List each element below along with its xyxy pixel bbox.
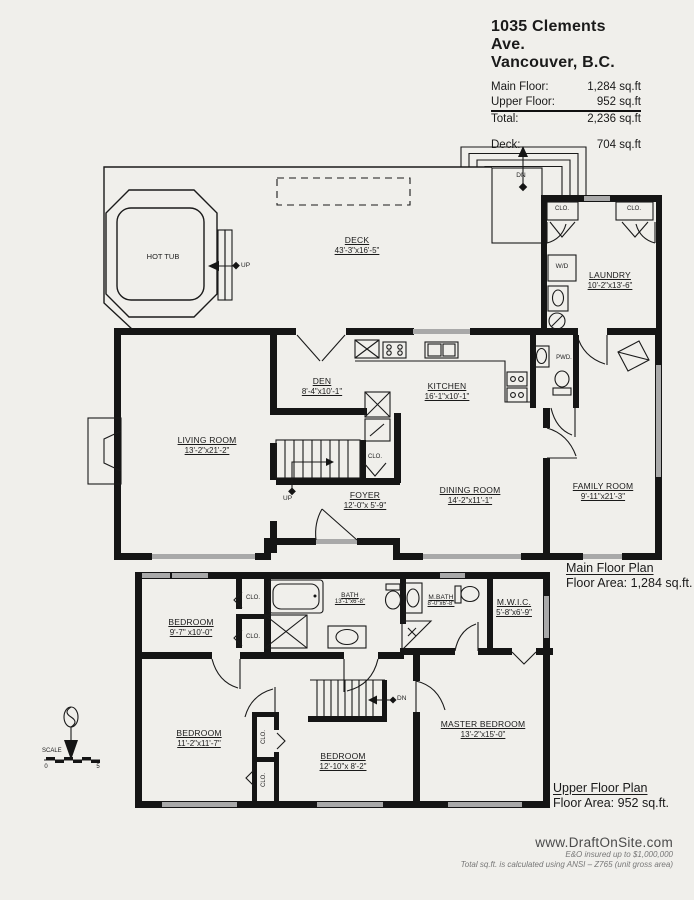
area-value: 1,284 sq.ft <box>587 80 641 95</box>
room-dims: 5'-8"x6'-9" <box>496 608 532 617</box>
room-dims: 11'-2"x11'-7" <box>176 739 221 748</box>
room-label-master-bath: M.BATH 8'-0"x6'-8" <box>428 594 455 608</box>
dn-stairs-label: DN <box>397 695 406 702</box>
up-stairs-label: UP <box>283 495 292 502</box>
caption-area: Floor Area: 1,284 sq.ft. <box>566 576 692 591</box>
room-dims: 9'-7" x10'-0" <box>168 628 213 637</box>
insurance-note: E&O insured up to $1,000,000 <box>461 850 673 860</box>
address-line1: 1035 Clements Ave. <box>491 18 641 54</box>
room-dims: 13'-2"x15'-0" <box>441 730 526 739</box>
area-row-deck: Deck: 704 sq.ft <box>491 138 641 153</box>
appliance <box>507 372 527 386</box>
dn-deck-label: DN <box>516 172 525 179</box>
floorplan-page: 1035 Clements Ave. Vancouver, B.C. Main … <box>0 0 694 900</box>
closet-label: CLO. <box>555 206 569 212</box>
room-dims: 8'-4"x10'-1" <box>302 387 342 396</box>
door-arc <box>547 428 577 458</box>
area-value: 2,236 sq.ft <box>587 112 641 127</box>
area-value: 952 sq.ft <box>597 95 641 110</box>
room-label-walk-in-closet: M.W.I.C. 5'-8"x6'-9" <box>496 598 532 617</box>
footer: www.DraftOnSite.com E&O insured up to $1… <box>461 835 673 871</box>
main-floor-interior <box>270 328 649 554</box>
appliance <box>507 388 527 402</box>
upper-floor-caption: Upper Floor Plan Floor Area: 952 sq.ft. <box>553 781 669 811</box>
room-label-bedroom-nw: BEDROOM 9'-7" x10'-0" <box>168 618 213 637</box>
area-label: Deck: <box>491 138 520 153</box>
area-label: Upper Floor: <box>491 95 555 110</box>
room-label-master-bedroom: MASTER BEDROOM 13'-2"x15'-0" <box>441 720 526 739</box>
room-label-laundry: LAUNDRY 10'-2"x13'-6" <box>588 271 633 290</box>
area-label: Main Floor: <box>491 80 549 95</box>
up-arrow <box>292 462 327 491</box>
area-row-upper: Upper Floor: 952 sq.ft <box>491 95 641 110</box>
scale-label: SCALE <box>42 748 62 754</box>
corner-shower <box>402 621 431 650</box>
scale-end-label: 5 <box>96 764 99 770</box>
room-name: FAMILY ROOM <box>573 482 633 492</box>
closet-label: CLO. <box>261 773 267 787</box>
room-dims: 9'-11"x21'-3" <box>573 492 633 501</box>
washer-dryer-label: W/D <box>556 263 569 270</box>
stove <box>383 342 406 358</box>
closet-label: CLO. <box>261 730 267 744</box>
main-floor-caption: Main Floor Plan Floor Area: 1,284 sq.ft. <box>566 561 692 591</box>
room-dims: 10'-2"x13'-6" <box>588 281 633 290</box>
pwd-toilet <box>555 371 569 387</box>
caption-title: Main Floor Plan <box>566 561 692 576</box>
scale-start-label: 0 <box>44 764 47 770</box>
powder-room-label: PWD. <box>556 355 572 361</box>
room-name: M.W.I.C. <box>496 598 532 608</box>
room-dims: 13'-1"x6'-8" <box>335 599 365 606</box>
address-line2: Vancouver, B.C. <box>491 54 641 72</box>
room-name: LIVING ROOM <box>178 436 237 446</box>
room-dims: 16'-1"x10'-1" <box>425 392 470 401</box>
closet-door-chevron <box>512 652 536 664</box>
caption-title: Upper Floor Plan <box>553 781 669 796</box>
closet-door-chevron <box>364 463 386 476</box>
room-dims: 8'-0"x6'-8" <box>428 601 455 608</box>
area-table: Main Floor: 1,284 sq.ft Upper Floor: 952… <box>491 80 641 153</box>
area-value: 704 sq.ft <box>597 138 641 153</box>
front-door-arc <box>316 509 357 540</box>
header: 1035 Clements Ave. Vancouver, B.C. Main … <box>491 18 641 153</box>
room-name: BEDROOM <box>320 752 367 762</box>
room-name: DEN <box>302 377 342 387</box>
room-label-living-room: LIVING ROOM 13'-2"x21'-2" <box>178 436 237 455</box>
deck-outline <box>104 167 542 330</box>
up-deck-label: UP <box>241 262 250 269</box>
website-url: www.DraftOnSite.com <box>461 835 673 850</box>
room-label-den: DEN 8'-4"x10'-1" <box>302 377 342 396</box>
stairs-main <box>276 440 360 478</box>
room-label-foyer: FOYER 12'-0"x 5'-9" <box>344 491 387 510</box>
door-arc <box>455 622 478 651</box>
hot-tub-label: HOT TUB <box>147 252 180 261</box>
deck-planter <box>277 178 410 205</box>
room-dims: 13'-2"x21'-2" <box>178 446 237 455</box>
room-label-family-room: FAMILY ROOM 9'-11"x21'-3" <box>573 482 633 501</box>
room-dims: 14'-2"x11'-1" <box>440 496 501 505</box>
closet-label: CLO. <box>246 634 260 640</box>
room-dims: 12'-0"x 5'-9" <box>344 501 387 510</box>
door-arc <box>416 681 445 712</box>
room-label-deck: DECK 43'-3"x16'-5" <box>335 236 380 255</box>
deck-stairs <box>461 146 586 195</box>
closet-label: CLO. <box>627 206 641 212</box>
closet-label: CLO. <box>246 595 260 601</box>
room-name: BEDROOM <box>176 729 221 739</box>
room-label-bath: BATH 13'-1"x6'-8" <box>335 592 365 606</box>
door-arc <box>551 408 575 437</box>
room-dims: 12'-10"x 8'-2" <box>320 762 367 771</box>
area-label: Total: <box>491 112 519 127</box>
mbath-toilet <box>455 586 461 603</box>
room-name: BATH <box>335 592 365 599</box>
room-label-dining-room: DINING ROOM 14'-2"x11'-1" <box>440 486 501 505</box>
door-arc <box>547 222 566 243</box>
scale-north-marker <box>44 707 100 763</box>
room-name: M.BATH <box>428 594 455 601</box>
caption-area: Floor Area: 952 sq.ft. <box>553 796 669 811</box>
room-label-kitchen: KITCHEN 16'-1"x10'-1" <box>425 382 470 401</box>
room-label-bedroom-sw: BEDROOM 11'-2"x11'-7" <box>176 729 221 748</box>
room-name: DINING ROOM <box>440 486 501 496</box>
room-name: FOYER <box>344 491 387 501</box>
room-dims: 43'-3"x16'-5" <box>335 246 380 255</box>
bath-toilet <box>386 584 400 590</box>
area-row-main: Main Floor: 1,284 sq.ft <box>491 80 641 95</box>
closet-door-chevron <box>277 733 285 749</box>
room-name: DECK <box>335 236 380 246</box>
room-name: KITCHEN <box>425 382 470 392</box>
room-name: BEDROOM <box>168 618 213 628</box>
door-arc <box>577 335 607 365</box>
closet-label: CLO. <box>368 454 382 460</box>
room-name: LAUNDRY <box>588 271 633 281</box>
area-row-total: Total: 2,236 sq.ft <box>491 110 641 127</box>
room-label-bedroom-s: BEDROOM 12'-10"x 8'-2" <box>320 752 367 771</box>
disclaimer-note: Total sq.ft. is calculated using ANSI – … <box>461 860 673 870</box>
door-arc <box>212 659 240 689</box>
room-name: MASTER BEDROOM <box>441 720 526 730</box>
